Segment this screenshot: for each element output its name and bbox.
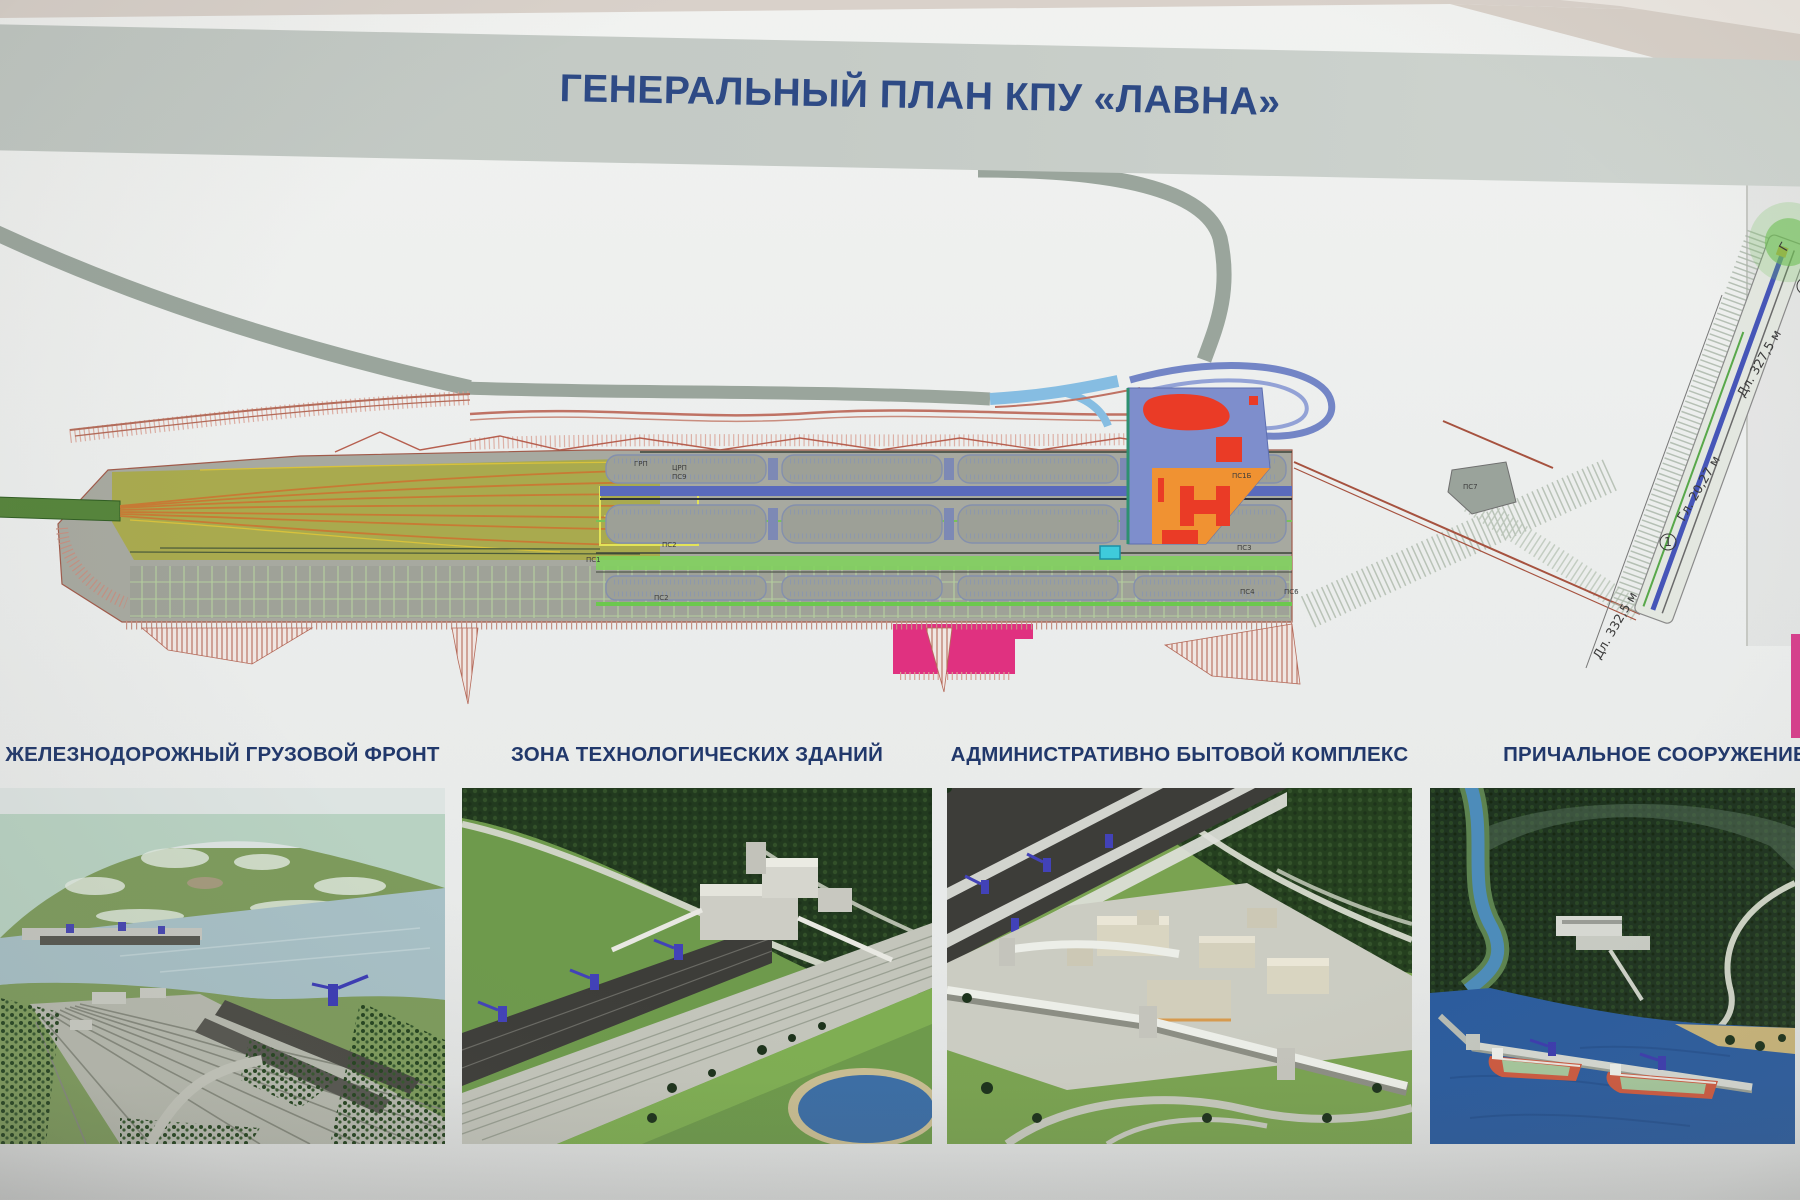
magenta-edge-sliver xyxy=(1791,634,1800,738)
conveyor-green-band xyxy=(596,556,1292,570)
cyan-block xyxy=(1100,546,1120,559)
label-ps6: ПС6 xyxy=(1284,588,1299,596)
label-grp: ГРП xyxy=(634,460,648,468)
photo-berthing xyxy=(1430,788,1795,1144)
label-ps1: ПС1 xyxy=(586,556,601,564)
magenta-block xyxy=(893,624,1015,674)
caption-berthing: ПРИЧАЛЬНОЕ СООРУЖЕНИЕ xyxy=(1490,740,1800,770)
pier-label-length-1: Дл. 332,5 м xyxy=(1590,589,1640,661)
label-ps2b: ПС2 xyxy=(654,594,669,602)
photo-admin-complex xyxy=(947,788,1412,1144)
label-ps9: ПС9 xyxy=(672,473,687,481)
label-crp: ЦРП xyxy=(672,464,687,472)
rail-approach xyxy=(70,394,1198,452)
label-ps1b: ПС1Б xyxy=(1232,472,1252,480)
label-ps3: ПС3 xyxy=(1237,544,1252,552)
photo-tech-buildings xyxy=(462,788,932,1144)
gray-roads xyxy=(0,170,1224,399)
caption-admin-complex: АДМИНИСТРАТИВНО БЫТОВОЙ КОМПЛЕКС xyxy=(947,740,1412,770)
caption-tech-buildings: ЗОНА ТЕХНОЛОГИЧЕСКИХ ЗДАНИЙ xyxy=(462,740,932,770)
label-ps4: ПС4 xyxy=(1240,588,1255,596)
pier-berth-number-1: 1 xyxy=(1664,534,1672,549)
label-ps7: ПС7 xyxy=(1463,483,1478,491)
master-plan: Дл. 332,5 м 1 Гл. 20,27 м Дл. 327,5 м 2 … xyxy=(0,170,1800,704)
pier-approach xyxy=(1294,421,1640,620)
photo-railway-front xyxy=(0,788,445,1144)
terminal-platform xyxy=(0,450,1292,622)
caption-railway-front: ЖЕЛЕЗНОДОРОЖНЫЙ ГРУЗОВОЙ ФРОНТ xyxy=(0,740,445,770)
label-ps2a: ПС2 xyxy=(662,541,677,549)
